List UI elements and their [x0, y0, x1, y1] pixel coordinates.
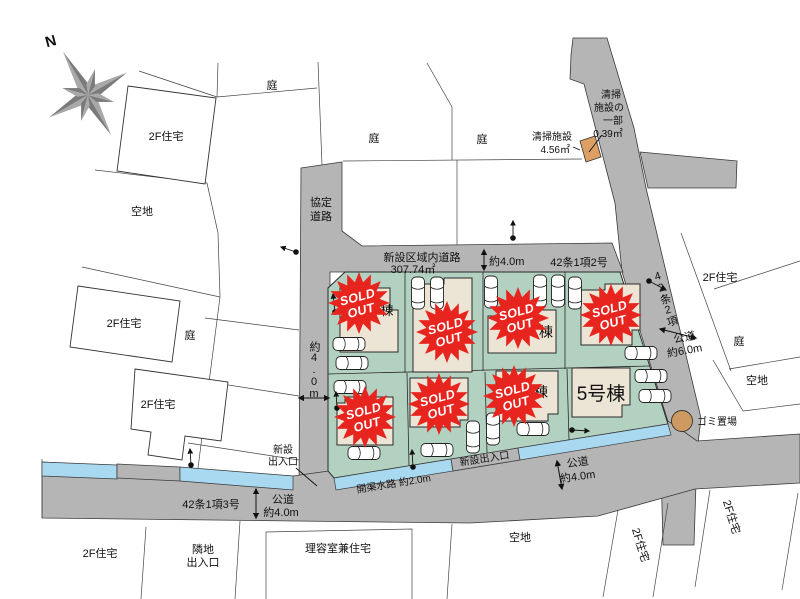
new-entrance-left-line2: 出入口 — [268, 455, 298, 468]
cleaning-part-line2: 施設の — [594, 101, 624, 114]
bottom-public-road-line1: 公道 — [272, 492, 294, 506]
neighbor-house-low-left — [131, 369, 228, 460]
car-icon — [421, 444, 453, 457]
yard-label: 庭 — [185, 328, 196, 342]
yard-label: 庭 — [369, 131, 380, 145]
neighbor-house-label: 2F住宅 — [703, 270, 738, 284]
barber-house-label: 理容室兼住宅 — [305, 541, 371, 555]
car-icon — [487, 413, 500, 445]
neighbor-house-label: 2F住宅 — [720, 498, 744, 535]
car-icon — [412, 277, 425, 309]
sold-out-badge: SOLDOUT — [408, 373, 470, 435]
car-icon — [431, 277, 444, 309]
neighbor-house-label: 2F住宅 — [107, 316, 142, 330]
yard-label: 庭 — [734, 334, 745, 348]
car-icon — [333, 338, 365, 351]
bottom-public-road-line2: 約4.0m — [263, 505, 298, 519]
right-branch-road — [640, 152, 737, 188]
new-area-road-line2: 307.74㎡ — [391, 263, 436, 276]
vacant-label: 空地 — [746, 373, 768, 387]
car-icon — [635, 370, 667, 383]
agreement-road-line2: 道路 — [310, 209, 332, 223]
neighbor-house-label: 2F住宅 — [83, 546, 118, 560]
cleaning-facility-line2: 4.56㎡ — [541, 144, 570, 156]
left-width-label: 約4.0m — [308, 340, 321, 400]
neighbor-house-label: 2F住宅 — [149, 129, 184, 143]
garbage-station — [672, 411, 693, 432]
car-icon — [552, 275, 565, 307]
new-area-road-line1: 新設区域内道路 — [384, 250, 461, 264]
car-icon — [569, 277, 582, 309]
car-icon — [625, 347, 657, 360]
water-segment-left — [42, 462, 117, 479]
compass-north-label: N — [43, 32, 58, 51]
car-icon — [517, 423, 549, 436]
article-42-1-2-label: 42条1項2号 — [550, 255, 607, 269]
vacant-label: 空地 — [131, 204, 153, 218]
sold-out-badge: SOLDOUT — [334, 386, 396, 448]
neighbor-house-label: 2F住宅 — [629, 526, 653, 563]
ramp-left — [117, 464, 180, 481]
article-42-1-3-label: 42条1項3号 — [182, 497, 239, 511]
sold-out-badge: SOLDOUT — [328, 272, 390, 334]
car-icon — [348, 447, 380, 460]
top-width-label: 約4.0m — [489, 254, 524, 268]
sold-out-badge: SOLDOUT — [487, 287, 549, 349]
cleaning-part-line1: 清掃 — [601, 88, 621, 101]
car-icon — [485, 276, 498, 308]
site-plan: 棟 棟 棟 5号棟 SOLDOUT SOLDOUT SOLD — [0, 0, 800, 599]
neighbor-entrance-line2: 出入口 — [187, 555, 220, 569]
sold-out-badge: SOLDOUT — [580, 284, 642, 346]
car-icon — [467, 421, 480, 453]
yard-label: 庭 — [477, 132, 488, 146]
car-icon — [639, 390, 671, 403]
garbage-label: ゴミ置場 — [697, 415, 737, 428]
new-entrance-left-line1: 新設 — [273, 443, 293, 456]
car-icon — [336, 357, 368, 370]
agreement-road-line1: 協定 — [310, 195, 332, 209]
vacant-label: 空地 — [509, 530, 531, 544]
car-icon — [334, 381, 366, 394]
neighbor-entrance-line1: 隣地 — [192, 542, 214, 556]
lot8-label: 5号棟 — [577, 383, 626, 405]
sold-out-badge: SOLDOUT — [483, 365, 545, 427]
neighbor-house-label: 2F住宅 — [141, 397, 176, 411]
cleaning-part-line3: 一部 — [603, 114, 623, 127]
cleaning-pointer — [573, 147, 580, 150]
cleaning-facility-line1: 清掃施設 — [532, 130, 572, 143]
sold-out-badge: SOLDOUT — [416, 301, 478, 363]
cleaning-part-line4: 0.39㎡ — [593, 128, 622, 140]
yard-label: 庭 — [267, 78, 278, 92]
